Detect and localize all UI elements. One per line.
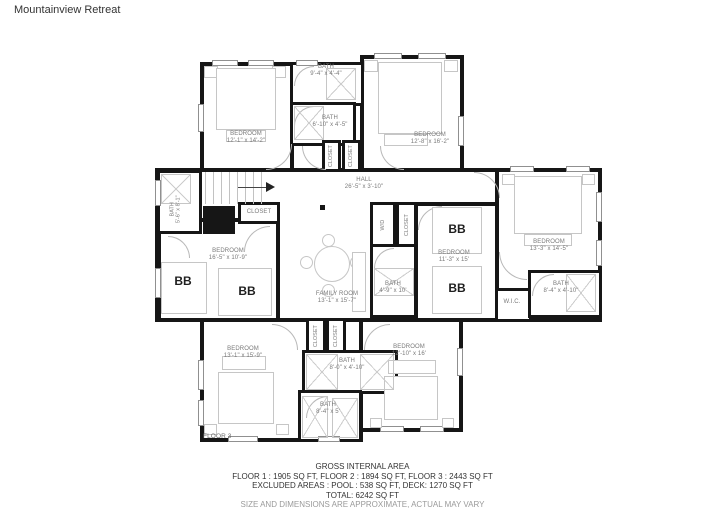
label-bedroom-top-right: BEDROOM 12'-8" x 16'-2": [390, 132, 470, 146]
bed: [216, 68, 276, 130]
window: [198, 360, 204, 390]
gross-internal-area-title: GROSS INTERNAL AREA: [0, 462, 725, 472]
window: [457, 348, 463, 376]
room-name: BEDROOM: [206, 131, 286, 138]
label-closet-center: CLOSET: [392, 214, 422, 236]
label-bath-bottom-2: BATH 8'-4" x 5': [300, 402, 356, 416]
room-name: BEDROOM: [390, 132, 470, 139]
bunk-bed-label: BB: [168, 274, 198, 288]
window: [198, 400, 204, 426]
label-bath-bottom-1: BATH 8'-0" x 4'-10": [312, 358, 382, 372]
label-closet-mid: CLOSET: [237, 209, 281, 216]
excluded-areas: EXCLUDED AREAS : POOL : 538 SQ FT, DECK:…: [0, 481, 725, 491]
bunk-bed: [161, 262, 207, 314]
closet-label: CLOSET: [404, 214, 410, 236]
room-dims: 8'-4" x 5': [300, 409, 356, 416]
label-bath-right: BATH 8'-4" x 4'-10": [528, 281, 594, 295]
total-area: TOTAL: 6242 SQ FT: [0, 491, 725, 501]
room-name: BATH: [300, 115, 360, 122]
nightstand: [444, 60, 458, 72]
floor-plan: BEDROOM 12'-1" x 14'-2" BATH 9'-4" x 4'-…: [0, 0, 725, 460]
label-bath-top-2: BATH 6'-10" x 4'-5": [300, 115, 360, 129]
room-name: BATH: [300, 402, 356, 409]
room-name: BEDROOM: [200, 346, 286, 353]
room-dims: 13'-3" x 14'-5": [509, 246, 589, 253]
window: [418, 53, 446, 59]
room-dims: 12'-1" x 14'-2": [206, 138, 286, 145]
window: [248, 60, 274, 66]
label-bedroom-top-left: BEDROOM 12'-1" x 14'-2": [206, 131, 286, 145]
bed: [514, 176, 582, 234]
label-bedroom-mid-right: BEDROOM 11'-3" x 15': [419, 250, 489, 264]
room-name: BEDROOM: [369, 344, 449, 351]
floor-label-text: FLOOR 3: [203, 433, 253, 441]
room-dims: 8'-0" x 4'-10": [312, 365, 382, 372]
room-dims: 16'-5" x 10'-9": [185, 255, 271, 262]
window: [596, 240, 602, 266]
room-dims: 11'-3" x 15': [419, 257, 489, 264]
window: [510, 166, 534, 172]
wall-dot: [320, 205, 325, 210]
label-bedroom-bottom-right: BEDROOM 12'-10" x 16': [369, 344, 449, 358]
room-dims: 5'-6" x 8'-1": [176, 195, 182, 223]
room-dims: 13'-1" x 15'-7": [292, 298, 382, 305]
room-name: BATH: [312, 358, 382, 365]
window: [596, 192, 602, 222]
label-bedroom-right: BEDROOM 13'-3" x 14'-5": [509, 239, 589, 253]
closet-label: CLOSET: [333, 325, 339, 347]
window: [198, 104, 204, 132]
label-bath-mid-left: BATH 5'-6" x 8'-1": [154, 196, 198, 222]
stair-wall-block: [203, 206, 235, 234]
label-bedroom-bottom-left: BEDROOM 13'-1" x 15'-9": [200, 346, 286, 360]
room-name: BEDROOM: [419, 250, 489, 257]
room-dims: 26'-5" x 3'-10": [324, 184, 404, 191]
room-dims: 13'-1" x 15'-9": [200, 353, 286, 360]
room-name: BEDROOM: [509, 239, 589, 246]
room-dims: 12'-10" x 16': [369, 351, 449, 358]
closet-label: CLOSET: [348, 145, 354, 167]
bed: [378, 62, 442, 134]
chair: [322, 234, 335, 247]
window: [380, 426, 404, 432]
room-name: BATH: [528, 281, 594, 288]
closet-label: CLOSET: [313, 325, 319, 347]
window: [374, 53, 402, 59]
nightstand: [364, 60, 378, 72]
bed: [218, 372, 274, 424]
stairs-direction-line: [238, 187, 266, 188]
nightstand: [370, 418, 382, 428]
bench: [388, 360, 436, 374]
nightstand: [582, 174, 595, 185]
nightstand: [442, 418, 454, 428]
label-closet-top-b: CLOSET: [336, 141, 366, 171]
floor-label: FLOOR 3: [203, 433, 253, 441]
room-label-rotated: BATH 5'-6" x 8'-1": [170, 195, 183, 223]
closet-label: CLOSET: [237, 209, 281, 216]
room-dims: 6'-10" x 4'-5": [300, 122, 360, 129]
area-summary: GROSS INTERNAL AREA FLOOR 1 : 1905 SQ FT…: [0, 462, 725, 510]
label-bath-top-1: BATH 9'-4" x 4'-4": [296, 64, 356, 78]
stairs: [205, 172, 267, 204]
window: [566, 166, 590, 172]
stairs-arrow-icon: [266, 182, 275, 192]
wic-label: W.I.C.: [492, 299, 532, 306]
table: [314, 246, 350, 282]
label-bedroom-mid-left: BEDROOM 16'-5" x 10'-9": [185, 248, 271, 262]
wd-label: W/D: [380, 220, 386, 231]
room-name: HALL: [324, 177, 404, 184]
label-hall: HALL 26'-5" x 3'-10": [324, 177, 404, 191]
label-wic: W.I.C.: [492, 299, 532, 306]
room-name: BATH: [296, 64, 356, 71]
room-dims: 8'-4" x 4'-10": [528, 288, 594, 295]
chair: [300, 256, 313, 269]
closet-label: CLOSET: [328, 145, 334, 167]
bunk-bed-label: BB: [442, 222, 472, 236]
room-dims: 4'-9" x 10': [365, 288, 421, 295]
room-name: BATH: [365, 281, 421, 288]
room-dims: 9'-4" x 4'-4": [296, 71, 356, 78]
label-bath-center: BATH 4'-9" x 10': [365, 281, 421, 295]
bunk-bed-label: BB: [232, 284, 262, 298]
floor-areas: FLOOR 1 : 1905 SQ FT, FLOOR 2 : 1894 SQ …: [0, 472, 725, 482]
room-dims: 12'-8" x 16'-2": [390, 139, 470, 146]
bunk-bed-label: BB: [442, 281, 472, 295]
nightstand: [276, 424, 289, 435]
room-name: BEDROOM: [185, 248, 271, 255]
window: [420, 426, 444, 432]
label-closet-bottom-b: CLOSET: [321, 321, 351, 351]
disclaimer: SIZE AND DIMENSIONS ARE APPROXIMATE, ACT…: [0, 500, 725, 510]
